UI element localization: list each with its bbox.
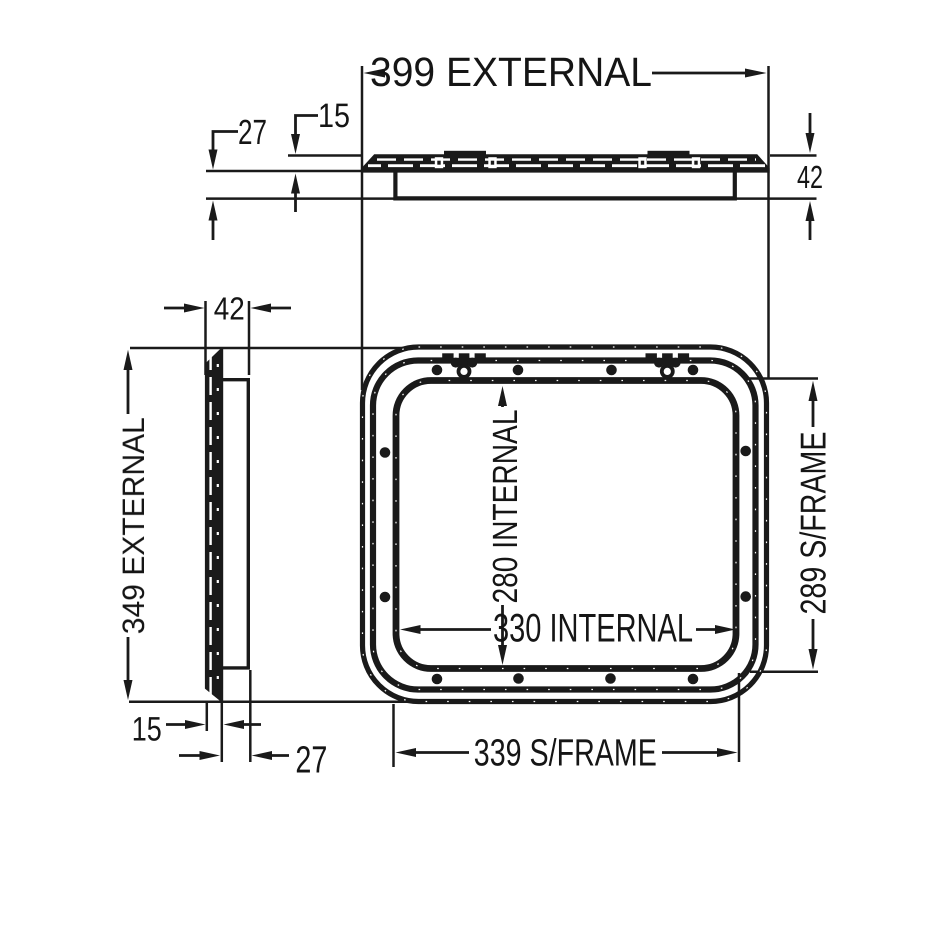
- svg-text:27: 27: [295, 740, 327, 782]
- svg-text:349 EXTERNAL: 349 EXTERNAL: [116, 417, 151, 634]
- svg-text:280 INTERNAL: 280 INTERNAL: [486, 410, 525, 604]
- svg-text:399 EXTERNAL: 399 EXTERNAL: [370, 49, 652, 95]
- svg-text:339 S/FRAME: 339 S/FRAME: [474, 732, 657, 774]
- svg-text:42: 42: [214, 290, 245, 326]
- svg-text:15: 15: [132, 711, 162, 749]
- svg-text:289 S/FRAME: 289 S/FRAME: [793, 432, 834, 615]
- svg-text:330 INTERNAL: 330 INTERNAL: [493, 607, 693, 651]
- svg-text:27: 27: [238, 113, 267, 152]
- svg-text:42: 42: [797, 159, 823, 195]
- svg-text:15: 15: [318, 97, 350, 135]
